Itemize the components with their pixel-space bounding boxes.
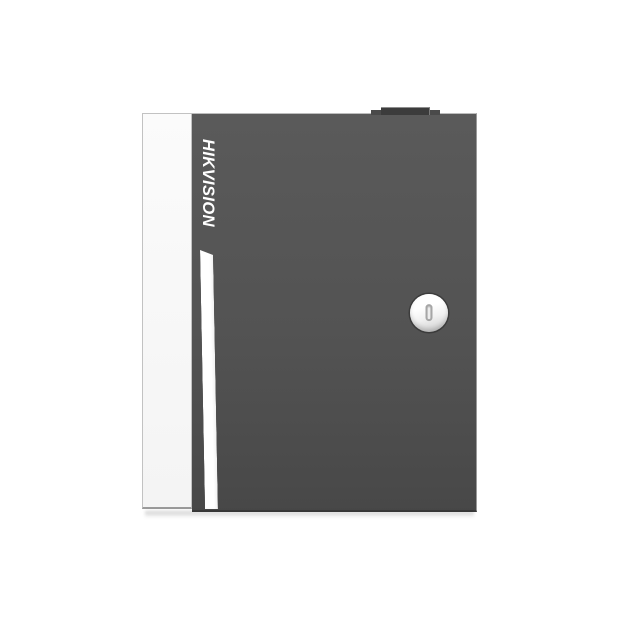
door-stripe-decal	[200, 250, 218, 509]
cam-lock	[410, 294, 448, 332]
product-photo: HIKVISION	[0, 0, 620, 620]
enclosure-door: HIKVISION	[192, 113, 477, 512]
top-knob-icon	[381, 107, 430, 115]
keyhole-icon	[426, 304, 433, 321]
enclosure-device: HIKVISION	[142, 113, 477, 512]
enclosure-side-panel	[142, 113, 192, 509]
brand-logo: HIKVISION	[200, 139, 215, 239]
